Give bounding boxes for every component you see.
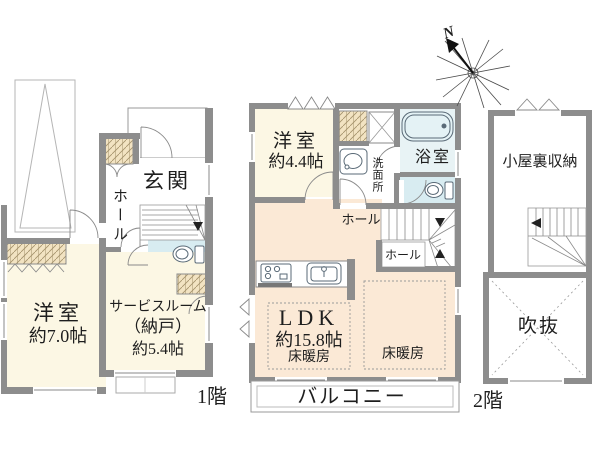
floorplan-drawing <box>0 0 600 450</box>
room-label-western2-size: 約4.4帖 <box>251 153 341 170</box>
room-label-balcony: バルコニー <box>292 387 412 407</box>
floor1-label: 1階 <box>182 387 242 407</box>
room-label-washroom: 洗面所 <box>371 147 382 203</box>
room-label-ldk-heating: 床暖房 <box>277 351 341 365</box>
compass-icon <box>436 38 510 108</box>
room-label-void: 吹抜 <box>506 317 572 336</box>
parking-space <box>15 80 75 232</box>
floor2-label: 2階 <box>458 391 518 411</box>
bathtub-icon <box>402 112 453 141</box>
room-label-attic-storage: 小屋裏収納 <box>496 155 584 170</box>
room-label-hall-2f-upper: ホール <box>339 213 383 226</box>
kitchen-counter <box>256 261 352 287</box>
room-label-ldk-size: 約15.8帖 <box>263 331 355 349</box>
room-label-hall-1f: ホール <box>111 180 126 252</box>
room-label-dining-heating: 床暖房 <box>371 348 435 362</box>
floorplan-canvas: 玄関 ホール 洋室 約7.0帖 サービスルーム （納戸） 約5.4帖 1階 洋室… <box>0 0 600 450</box>
washbasin-icon <box>340 149 367 174</box>
stove-icon <box>261 264 291 282</box>
room-label-service-name: サービスルーム <box>108 301 208 315</box>
room-label-service-name2: （納戸） <box>108 318 208 335</box>
attic-plan <box>483 99 592 384</box>
attic-stairs <box>528 208 586 266</box>
room-label-genkan: 玄関 <box>134 171 200 192</box>
room-label-hall-2f-lower: ホール <box>383 249 423 261</box>
room-label-bathroom: 浴室 <box>407 150 459 166</box>
room-label-western2-name: 洋室 <box>258 132 334 151</box>
room-label-western1-size: 約7.0帖 <box>11 327 105 345</box>
toilet-icon-1f <box>173 246 204 263</box>
room-label-service-size: 約5.4帖 <box>108 342 208 358</box>
toilet-icon-2f <box>425 182 453 199</box>
room-label-western1-name: 洋室 <box>16 303 100 324</box>
sink-icon <box>307 263 341 284</box>
room-label-ldk-name: LDK <box>267 307 351 329</box>
